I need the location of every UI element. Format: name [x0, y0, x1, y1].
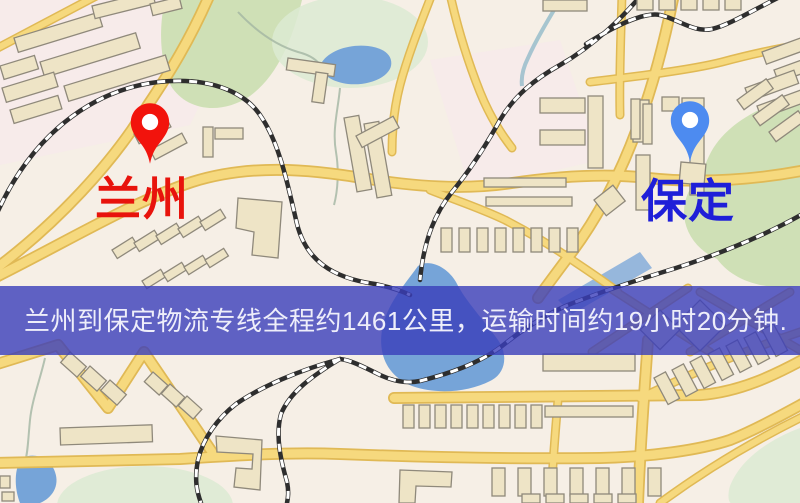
origin-city-label: 兰州	[95, 177, 189, 223]
route-info-banner: 兰州到保定物流专线全程约1461公里，运输时间约19小时20分钟.	[0, 286, 800, 355]
city-map-canvas	[0, 0, 800, 503]
destination-city-label: 保定	[641, 179, 735, 225]
map-screenshot: 兰州 保定 兰州到保定物流专线全程约1461公里，运输时间约19小时20分钟.	[0, 0, 800, 503]
pin-body	[671, 101, 709, 161]
pin-hole	[142, 114, 158, 130]
destination-map-pin-icon	[666, 97, 714, 167]
route-info-text: 兰州到保定物流专线全程约1461公里，运输时间约19小时20分钟.	[0, 308, 787, 334]
origin-map-pin-icon	[126, 99, 174, 169]
pin-hole	[682, 112, 698, 128]
pin-body	[131, 103, 169, 163]
